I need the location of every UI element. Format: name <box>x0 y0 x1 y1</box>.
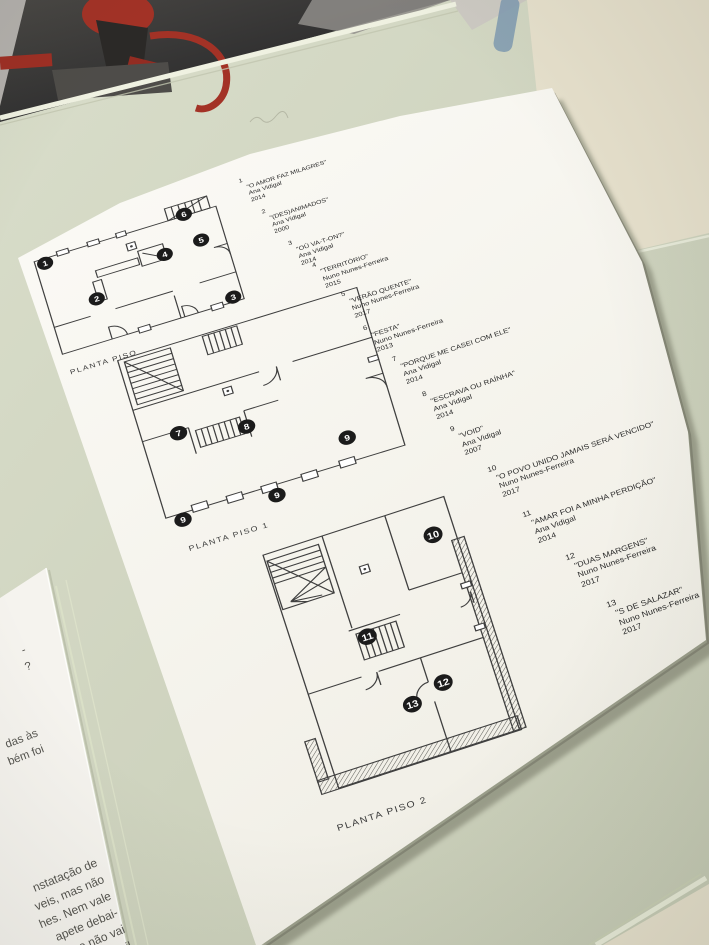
scene-graphics: 1 2 3 4 5 6 PLANTA PISO <box>0 0 709 945</box>
photo-of-exhibition-floorplan-sheet: 1 2 3 4 5 6 PLANTA PISO <box>0 0 709 945</box>
